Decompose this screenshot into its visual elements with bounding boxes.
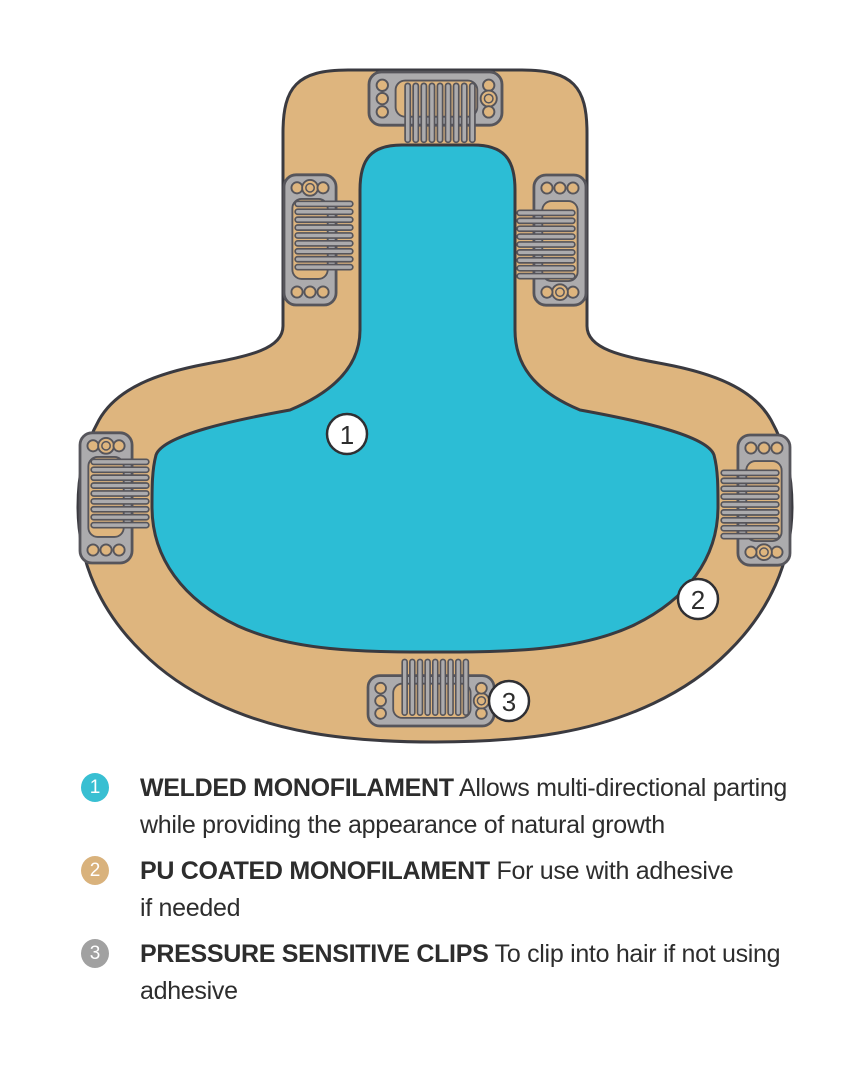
legend-text-2: PU COATED MONOFILAMENT For use with adhe…	[140, 853, 750, 927]
cap-construction-diagram: 123	[0, 0, 864, 760]
legend-badge-number: 3	[90, 943, 101, 965]
legend-badge-3: 3	[81, 939, 109, 968]
diagram-marker-number-3: 3	[502, 687, 516, 717]
legend-badge-number: 1	[90, 777, 101, 799]
legend-term-2: PU COATED MONOFILAMENT	[140, 857, 490, 885]
diagram-marker-number-1: 1	[340, 420, 354, 450]
legend-item-welded-monofilament: 1 WELDED MONOFILAMENT Allows multi-direc…	[81, 770, 801, 844]
diagram-marker-number-2: 2	[691, 585, 705, 615]
legend-badge-1: 1	[81, 773, 109, 802]
legend-badge-number: 2	[90, 860, 101, 882]
legend: 1 WELDED MONOFILAMENT Allows multi-direc…	[81, 770, 801, 1019]
cap-diagram-svg: 123	[0, 0, 864, 760]
legend-text-1: WELDED MONOFILAMENT Allows multi-directi…	[140, 770, 801, 844]
legend-badge-2: 2	[81, 856, 109, 885]
legend-item-pu-coated-monofilament: 2 PU COATED MONOFILAMENT For use with ad…	[81, 853, 801, 927]
legend-item-pressure-sensitive-clips: 3 PRESSURE SENSITIVE CLIPS To clip into …	[81, 936, 801, 1010]
page: 123 1 WELDED MONOFILAMENT Allows multi-d…	[0, 0, 864, 1080]
legend-text-3: PRESSURE SENSITIVE CLIPS To clip into ha…	[140, 936, 800, 1010]
legend-term-1: WELDED MONOFILAMENT	[140, 774, 454, 802]
legend-term-3: PRESSURE SENSITIVE CLIPS	[140, 940, 488, 968]
